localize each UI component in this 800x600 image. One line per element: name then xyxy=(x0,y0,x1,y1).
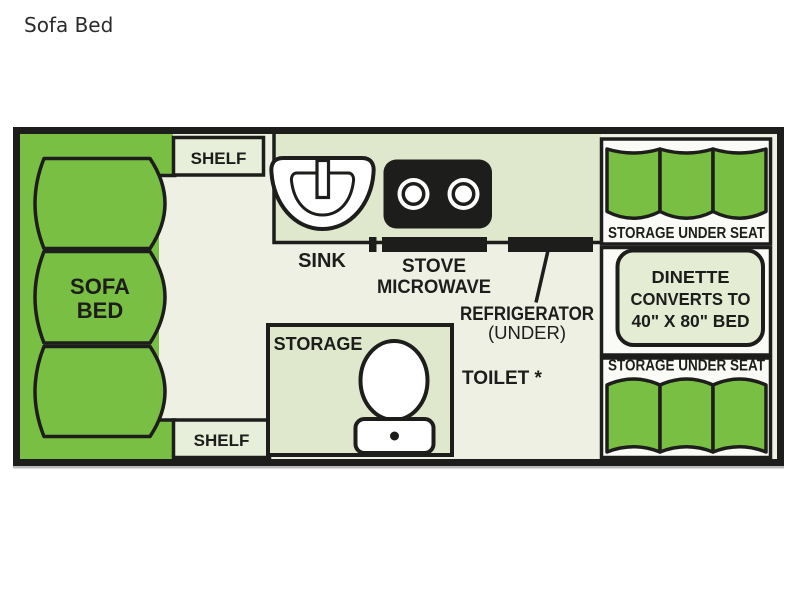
seat-bottom-cushion-2 xyxy=(660,379,713,452)
toilet-flush-button xyxy=(390,432,399,441)
dinette-group: DINETTE CONVERTS TO 40" X 80" BED xyxy=(602,248,771,356)
shelf-top-label: SHELF xyxy=(191,149,247,168)
sink-faucet xyxy=(317,161,329,198)
sofa-cushion-1 xyxy=(35,159,165,249)
seat-top-cushion-1 xyxy=(607,149,660,218)
stove-label: STOVE xyxy=(402,256,466,277)
storage-under-seat-bottom-label: STORAGE UNDER SEAT xyxy=(608,358,765,375)
refrigerator-front-bar xyxy=(508,237,593,252)
seat-top-cushion-3 xyxy=(713,149,766,218)
shelf-bottom-label: SHELF xyxy=(194,431,250,450)
sofa-bed-label-line2: BED xyxy=(77,298,123,323)
stove-front-bar xyxy=(382,237,487,252)
microwave-label: MICROWAVE xyxy=(377,277,491,298)
dinette-label-line2: CONVERTS TO xyxy=(631,289,751,309)
stove-burner-left-center xyxy=(405,186,422,203)
sink-label: SINK xyxy=(298,250,346,272)
seat-bottom-cushion-1 xyxy=(607,379,660,452)
counter-divider-tick xyxy=(369,237,377,252)
floorplan-diagram: SOFA BED SHELF SHELF xyxy=(0,0,800,600)
storage-label: STORAGE xyxy=(274,334,363,354)
seat-bottom-group: STORAGE UNDER SEAT xyxy=(602,358,771,458)
sofa-bed-label-line1: SOFA xyxy=(70,274,130,299)
refrigerator-under-label: (UNDER) xyxy=(488,322,566,343)
toilet-bowl xyxy=(361,341,428,420)
dinette-label-line1: DINETTE xyxy=(652,267,730,287)
sofa-bed-group: SOFA BED xyxy=(20,134,177,459)
seat-top-cushion-2 xyxy=(660,149,713,218)
shelf-bottom-group: SHELF xyxy=(174,420,270,458)
seat-top-group: STORAGE UNDER SEAT xyxy=(602,139,771,244)
toilet-icon xyxy=(356,341,434,453)
stove-burner-right-center xyxy=(455,186,472,203)
stove-icon xyxy=(384,160,493,229)
page: Sofa Bed SOFA BED SHELF SHELF xyxy=(0,0,800,600)
dinette-label-line3: 40" X 80" BED xyxy=(632,311,750,331)
trailer-shadow xyxy=(13,466,784,469)
shelf-top-group: SHELF xyxy=(174,138,264,176)
sofa-cushion-3 xyxy=(35,347,165,437)
toilet-label: TOILET * xyxy=(462,368,542,389)
storage-under-seat-top-label: STORAGE UNDER SEAT xyxy=(608,225,765,242)
seat-bottom-cushion-3 xyxy=(713,379,766,452)
